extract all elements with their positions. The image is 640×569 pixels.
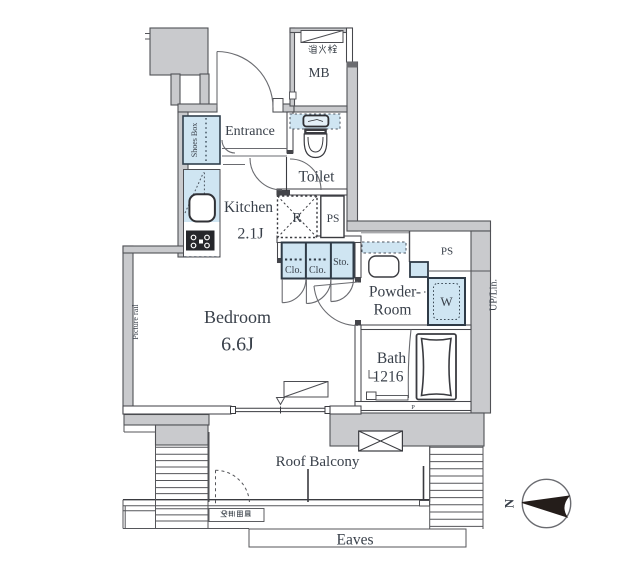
svg-text:1216: 1216 (373, 369, 404, 386)
svg-text:N: N (501, 498, 516, 508)
svg-text:Clo.: Clo. (285, 265, 302, 276)
svg-text:Bath: Bath (377, 350, 407, 367)
svg-text:Sto.: Sto. (333, 257, 349, 268)
svg-text:Entrance: Entrance (225, 124, 275, 139)
svg-text:MB: MB (308, 65, 329, 80)
svg-text:Roof Balcony: Roof Balcony (276, 454, 360, 470)
svg-text:P: P (411, 404, 415, 411)
svg-text:Shoes Box: Shoes Box (190, 123, 199, 157)
svg-text:6.6J: 6.6J (221, 334, 254, 356)
svg-text:PS: PS (441, 246, 453, 258)
svg-text:Kitchen: Kitchen (224, 199, 273, 216)
svg-text:R: R (292, 211, 302, 226)
svg-text:Room: Room (374, 302, 412, 319)
svg-text:Eaves: Eaves (336, 532, 373, 549)
svg-text:Picture rail: Picture rail (131, 304, 140, 340)
svg-text:Clo.: Clo. (309, 265, 326, 276)
svg-text:Toilet: Toilet (299, 169, 336, 186)
svg-text:Powder-: Powder- (369, 284, 421, 301)
svg-text:2.1J: 2.1J (237, 226, 263, 243)
svg-text:Bedroom: Bedroom (204, 307, 271, 327)
svg-text:PS: PS (327, 213, 340, 225)
svg-text:UP/Lin.: UP/Lin. (489, 279, 500, 311)
svg-text:W: W (440, 294, 453, 309)
